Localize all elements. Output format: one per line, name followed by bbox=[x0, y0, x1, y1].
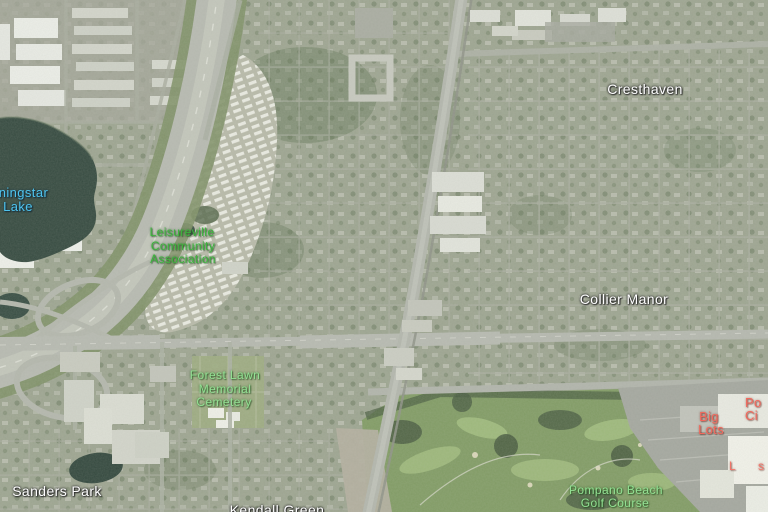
satellite-map[interactable]: Cresthaven Collier Manor Sanders Park Ke… bbox=[0, 0, 768, 512]
aerial-imagery bbox=[0, 0, 768, 512]
photo-grain bbox=[0, 0, 768, 512]
